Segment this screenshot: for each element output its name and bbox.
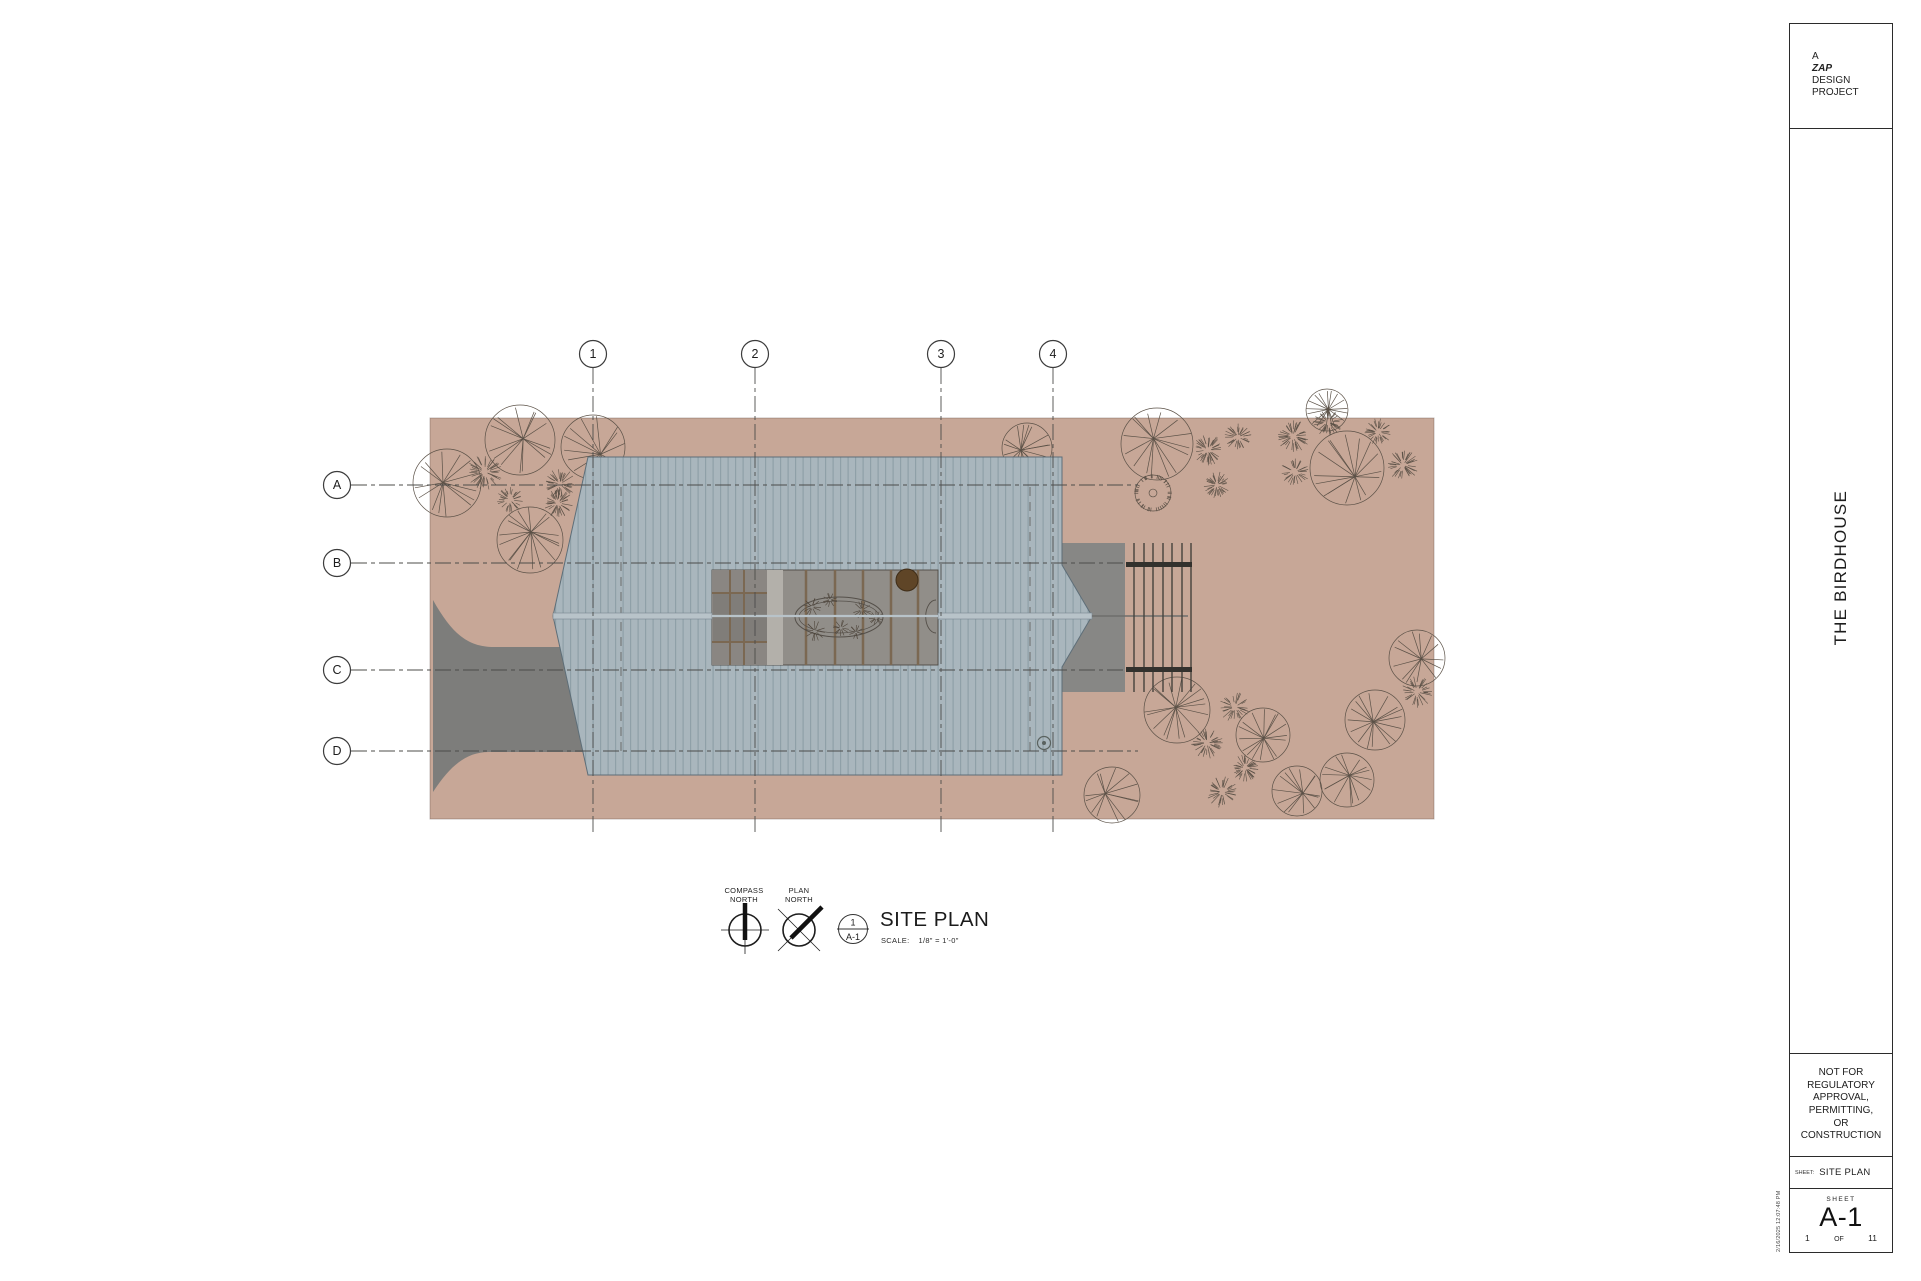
page-of: OF <box>1834 1236 1844 1243</box>
sheet-title-row: SHEET: SITE PLAN <box>1790 1156 1892 1188</box>
project-title-panel: THE BIRDHOUSE <box>1790 128 1892 1053</box>
sheet-number-panel: SHEET A-1 1 OF 11 <box>1790 1188 1892 1252</box>
page-counter: 1 OF 11 <box>1790 1233 1892 1243</box>
courtyard-inner-band <box>713 593 767 642</box>
callout-number: 1 <box>850 918 855 928</box>
grid-bubble-label: 2 <box>752 347 759 361</box>
plan-north-icon <box>767 898 831 962</box>
grid-bubble-label: 1 <box>590 347 597 361</box>
sheet-title-label: SHEET: <box>1795 1170 1814 1176</box>
callout-sheet: A-1 <box>846 932 860 942</box>
firm-logo: A ZAP DESIGN PROJECT <box>1790 24 1892 128</box>
tree-spoke <box>1328 409 1347 410</box>
grid-bubble-label: 4 <box>1050 347 1057 361</box>
sheet-number: A-1 <box>1790 1203 1892 1232</box>
ridge-band <box>938 613 1092 619</box>
grid-bubble-label: B <box>333 556 341 570</box>
tree-spoke <box>1307 409 1328 413</box>
grid-bubble-label: A <box>333 478 342 492</box>
scale-note: SCALE:1/8" = 1'-0" <box>881 936 959 945</box>
plot-timestamp: 2/16/2025 12:07:48 PM <box>1776 1148 1782 1252</box>
view-title: SITE PLAN <box>880 908 989 932</box>
grid-bubble-label: 3 <box>938 347 945 361</box>
page-total: 11 <box>1868 1233 1877 1243</box>
tree-spoke <box>1328 400 1344 409</box>
tree-spoke <box>1315 395 1329 409</box>
grid-bubble-label: C <box>332 663 341 677</box>
courtyard-walkway <box>767 570 783 665</box>
project-title: THE BIRDHOUSE <box>1831 490 1851 691</box>
roof-vent-center <box>1042 741 1046 745</box>
grid-bubble-label: D <box>332 744 341 758</box>
disclaimer: NOT FOR REGULATORY APPROVAL, PERMITTING,… <box>1790 1053 1892 1156</box>
sheet-title-value: SITE PLAN <box>1819 1167 1870 1178</box>
site-plan-canvas: 1234ABCD <box>0 0 1921 1281</box>
detail-callout: 1 A-1 <box>832 909 874 951</box>
tree-spoke <box>1306 409 1328 410</box>
trellis-beam <box>1126 562 1192 567</box>
ridge-band <box>553 613 712 619</box>
title-block: A ZAP DESIGN PROJECT THE BIRDHOUSE NOT F… <box>1789 23 1893 1253</box>
courtyard-tree <box>896 569 918 591</box>
trellis-beam <box>1126 667 1192 672</box>
tree-spoke <box>1327 391 1328 409</box>
page-current: 1 <box>1805 1233 1810 1243</box>
